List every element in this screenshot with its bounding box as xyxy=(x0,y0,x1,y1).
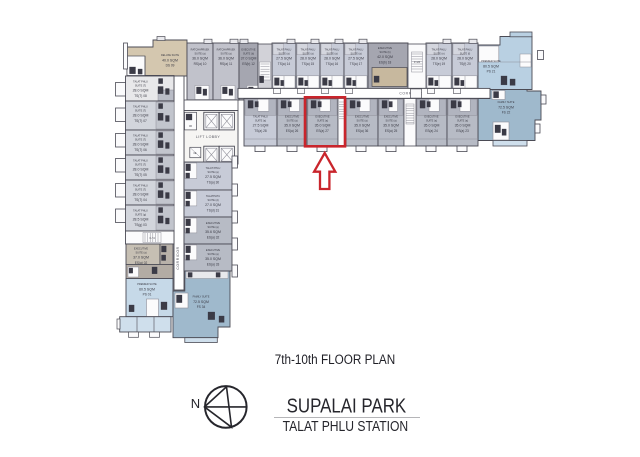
svg-text:37.0 SQM: 37.0 SQM xyxy=(133,256,149,260)
svg-text:PREMIER SUITE: PREMIER SUITE xyxy=(481,60,501,63)
svg-text:TS(a) 28: TS(a) 28 xyxy=(254,129,267,133)
svg-text:TALAT PHLU: TALAT PHLU xyxy=(349,49,364,52)
svg-text:TS(e) 19: TS(e) 19 xyxy=(433,62,446,66)
svg-text:SUITE (T): SUITE (T) xyxy=(135,163,146,166)
svg-text:RS(a) 10: RS(a) 10 xyxy=(194,62,207,66)
svg-text:27.0 SQM: 27.0 SQM xyxy=(205,203,221,207)
svg-text:FAMILY SUITE: FAMILY SUITE xyxy=(498,101,515,104)
svg-text:SUITE (T): SUITE (T) xyxy=(135,109,146,112)
svg-text:EXECUTIVE: EXECUTIVE xyxy=(285,116,300,119)
svg-text:SUITE (a): SUITE (a) xyxy=(356,119,367,122)
svg-text:EXECUTIVE: EXECUTIVE xyxy=(384,116,399,119)
svg-text:TS(a) 15: TS(a) 15 xyxy=(302,62,315,66)
svg-text:42.0 SQM: 42.0 SQM xyxy=(377,55,393,59)
svg-text:SUITE (e): SUITE (e) xyxy=(433,52,444,55)
svg-text:0E: 0E xyxy=(194,152,197,155)
svg-text:N: N xyxy=(191,396,200,411)
svg-text:EXECUTIVE: EXECUTIVE xyxy=(355,116,370,119)
svg-text:EXECUTIVE: EXECUTIVE xyxy=(378,47,393,50)
svg-text:27.5 SQM: 27.5 SQM xyxy=(253,124,269,128)
svg-text:72.5 SQM: 72.5 SQM xyxy=(193,300,209,304)
svg-text:3 / 4: 3 / 4 xyxy=(149,236,155,240)
svg-text:60.5 SQM: 60.5 SQM xyxy=(139,287,155,291)
svg-text:TALATPLHU: TALATPLHU xyxy=(206,195,220,198)
svg-text:28.0 SQM: 28.0 SQM xyxy=(133,89,149,93)
svg-text:SUITE (T): SUITE (T) xyxy=(135,84,146,87)
svg-text:TALAT PHLU: TALAT PHLU xyxy=(133,135,148,138)
svg-text:35.0 SQM: 35.0 SQM xyxy=(354,124,370,128)
svg-text:27.5 SQM: 27.5 SQM xyxy=(276,57,292,61)
svg-text:28.5 SQM: 28.5 SQM xyxy=(133,218,149,222)
svg-text:CORRIDOR: CORRIDOR xyxy=(176,246,180,269)
svg-text:SUITE (f): SUITE (f) xyxy=(460,52,471,55)
svg-text:TALAT PHLU: TALAT PHLU xyxy=(277,49,292,52)
svg-text:EXECUTIVE: EXECUTIVE xyxy=(424,116,439,119)
svg-text:SUITE (T): SUITE (T) xyxy=(135,138,146,141)
svg-text:28.0 SQM: 28.0 SQM xyxy=(300,57,316,61)
svg-text:TALAT PHLU: TALAT PHLU xyxy=(458,49,473,52)
svg-text:SUPALAI PARK: SUPALAI PARK xyxy=(287,395,407,417)
svg-text:ES(a) 24: ES(a) 24 xyxy=(425,129,438,133)
svg-text:SUITE (a): SUITE (a) xyxy=(426,119,437,122)
svg-text:EXECUTIVE: EXECUTIVE xyxy=(134,248,149,251)
svg-text:SUITE (a): SUITE (a) xyxy=(207,226,218,229)
svg-text:FS 22: FS 22 xyxy=(502,111,511,115)
svg-text:36.0 SQM: 36.0 SQM xyxy=(218,57,234,61)
svg-text:28.0 SQM: 28.0 SQM xyxy=(324,57,340,61)
svg-text:SUITE (a): SUITE (a) xyxy=(385,119,396,122)
svg-text:28.0 SQM: 28.0 SQM xyxy=(457,57,473,61)
svg-text:ES(a) 33: ES(a) 33 xyxy=(207,262,220,266)
svg-text:SUITE (a): SUITE (a) xyxy=(457,119,468,122)
svg-text:27.5 SQM: 27.5 SQM xyxy=(205,175,221,179)
svg-text:TALAT PHLU: TALAT PHLU xyxy=(325,49,340,52)
svg-text:TS(T) 06: TS(T) 06 xyxy=(134,148,147,152)
svg-text:EXECUTIVE: EXECUTIVE xyxy=(455,116,470,119)
svg-text:TALAT PHLU: TALAT PHLU xyxy=(206,167,221,170)
svg-text:TALAT PHLU: TALAT PHLU xyxy=(133,210,148,213)
svg-text:PREMIER SUITE: PREMIER SUITE xyxy=(137,283,157,286)
svg-text:28.0 SQM: 28.0 SQM xyxy=(133,168,149,172)
svg-text:3 1/2: 3 1/2 xyxy=(414,60,421,64)
svg-text:TS(g) 03: TS(g) 03 xyxy=(134,223,147,227)
svg-text:ES(a) 26: ES(a) 26 xyxy=(286,129,299,133)
svg-text:ES(a) 27: ES(a) 27 xyxy=(316,129,329,133)
svg-text:SUITE (g): SUITE (g) xyxy=(135,213,146,216)
svg-text:TALAT PHLU STATION: TALAT PHLU STATION xyxy=(283,418,409,435)
svg-text:ES(a) 36: ES(a) 36 xyxy=(356,129,369,133)
svg-text:DELUXE SUITE: DELUXE SUITE xyxy=(161,54,179,57)
svg-text:TS(a) 14: TS(a) 14 xyxy=(278,62,291,66)
svg-text:TS(a) 16: TS(a) 16 xyxy=(326,62,339,66)
svg-text:TALAT PHLU: TALAT PHLU xyxy=(432,49,447,52)
svg-text:EXECUTIVE: EXECUTIVE xyxy=(206,249,221,252)
svg-text:LIFT LOBBY: LIFT LOBBY xyxy=(196,135,221,139)
svg-text:ES(a) 32: ES(a) 32 xyxy=(207,235,220,239)
svg-text:7th-10th FLOOR PLAN: 7th-10th FLOOR PLAN xyxy=(275,352,396,368)
svg-text:TS(T) 07: TS(T) 07 xyxy=(134,119,147,123)
svg-text:28.0 SQM: 28.0 SQM xyxy=(133,193,149,197)
svg-text:PS 01: PS 01 xyxy=(143,293,152,297)
svg-text:SUITE (a): SUITE (a) xyxy=(207,171,218,174)
svg-text:28.0 SQM: 28.0 SQM xyxy=(133,114,149,118)
svg-text:SUITE (a): SUITE (a) xyxy=(326,52,337,55)
svg-text:ES(b) 12: ES(b) 12 xyxy=(242,62,255,66)
svg-text:SUITE (a): SUITE (a) xyxy=(135,251,146,254)
svg-text:SUITE (a): SUITE (a) xyxy=(286,119,297,122)
svg-text:TALAT PHLU: TALAT PHLU xyxy=(133,160,148,163)
svg-text:35.0 SQM: 35.0 SQM xyxy=(284,124,300,128)
svg-text:SUITE (T): SUITE (T) xyxy=(135,188,146,191)
svg-text:SUITE (a): SUITE (a) xyxy=(194,52,205,55)
svg-text:TALAT PHLU: TALAT PHLU xyxy=(133,185,148,188)
svg-text:TS(a) 17: TS(a) 17 xyxy=(350,62,363,66)
svg-text:SUITE (a): SUITE (a) xyxy=(302,52,313,55)
svg-text:EXECUTIVE: EXECUTIVE xyxy=(206,222,221,225)
svg-text:TS(d) 31: TS(d) 31 xyxy=(207,208,220,212)
svg-text:TS(T) 04: TS(T) 04 xyxy=(134,198,147,202)
svg-text:35.0 SQM: 35.0 SQM xyxy=(315,124,331,128)
svg-text:ES(a) 23: ES(a) 23 xyxy=(456,129,469,133)
svg-text:TS(a) 30: TS(a) 30 xyxy=(207,180,220,184)
svg-text:EXECUTIVE: EXECUTIVE xyxy=(315,116,330,119)
svg-text:SUITE (a): SUITE (a) xyxy=(207,253,218,256)
svg-text:37.0 SQM: 37.0 SQM xyxy=(241,57,257,61)
svg-text:RATCHAPRUEK: RATCHAPRUEK xyxy=(191,49,210,52)
svg-text:28.0 SQM: 28.0 SQM xyxy=(431,57,447,61)
svg-text:72.5 SQM: 72.5 SQM xyxy=(498,105,514,109)
svg-text:RS(a) 11: RS(a) 11 xyxy=(220,62,233,66)
svg-text:ES(b) 18: ES(b) 18 xyxy=(379,60,392,64)
svg-text:DS 09: DS 09 xyxy=(166,64,175,68)
svg-text:35.6 SQM: 35.6 SQM xyxy=(205,230,221,234)
svg-text:TALAT PHLU: TALAT PHLU xyxy=(133,106,148,109)
svg-text:FAMILY SUITE: FAMILY SUITE xyxy=(193,296,210,299)
svg-text:TALAT PHLU: TALAT PHLU xyxy=(253,116,268,119)
svg-text:27.5 SQM: 27.5 SQM xyxy=(348,57,364,61)
svg-text:ES(a) 25: ES(a) 25 xyxy=(385,129,398,133)
svg-text:36.0 SQM: 36.0 SQM xyxy=(192,57,208,61)
svg-text:EXECUTIVE: EXECUTIVE xyxy=(241,49,256,52)
svg-text:SUITE (b): SUITE (b) xyxy=(243,52,254,55)
svg-text:35.0 SQM: 35.0 SQM xyxy=(424,124,440,128)
svg-text:RATCHAPRUEK: RATCHAPRUEK xyxy=(217,49,236,52)
svg-text:TS(f) 20: TS(f) 20 xyxy=(459,62,471,66)
svg-text:35.0 SQM: 35.0 SQM xyxy=(205,257,221,261)
svg-text:FS 34: FS 34 xyxy=(197,305,206,309)
svg-text:TALAT PHLU: TALAT PHLU xyxy=(301,49,316,52)
svg-text:SUITE (b): SUITE (b) xyxy=(379,51,390,54)
svg-text:TS(T) 08: TS(T) 08 xyxy=(134,94,147,98)
svg-text:35.0 SQM: 35.0 SQM xyxy=(455,124,471,128)
svg-text:SUITE (a): SUITE (a) xyxy=(220,52,231,55)
svg-text:28.0 SQM: 28.0 SQM xyxy=(133,143,149,147)
svg-text:SUITE (d): SUITE (d) xyxy=(207,199,218,202)
svg-text:TALAT PHLU: TALAT PHLU xyxy=(133,81,148,84)
svg-text:80.5 SQM: 80.5 SQM xyxy=(483,64,499,68)
svg-text:35.0 SQM: 35.0 SQM xyxy=(383,124,399,128)
svg-text:TS(T) 05: TS(T) 05 xyxy=(134,173,147,177)
svg-text:SUITE (a): SUITE (a) xyxy=(317,119,328,122)
svg-text:PS 21: PS 21 xyxy=(487,70,496,74)
svg-text:SUITE (a): SUITE (a) xyxy=(255,119,266,122)
svg-text:SUITE (a): SUITE (a) xyxy=(278,52,289,55)
svg-text:SUITE (a): SUITE (a) xyxy=(350,52,361,55)
svg-text:40.0 SQM: 40.0 SQM xyxy=(162,58,178,62)
